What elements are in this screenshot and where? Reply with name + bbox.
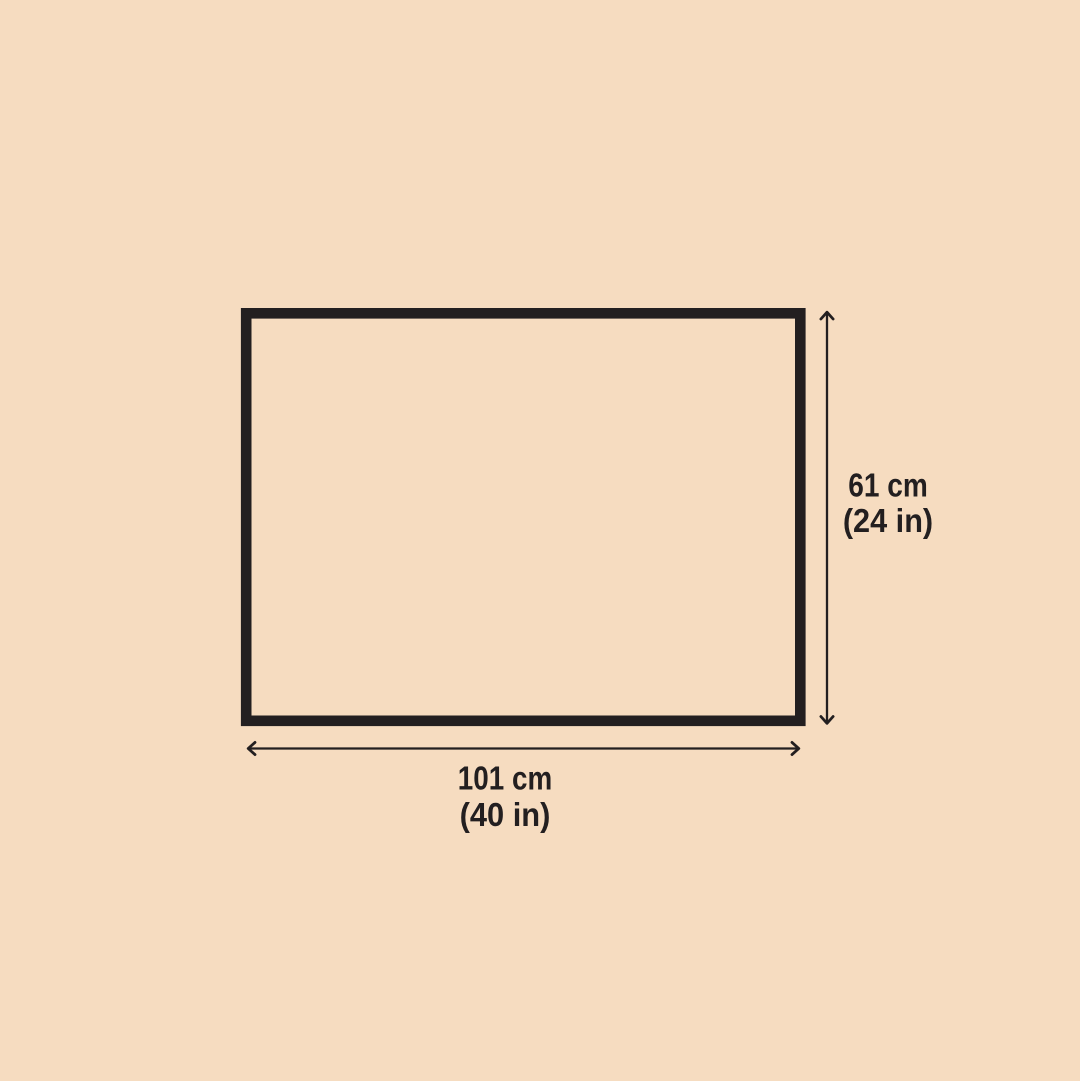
svg-text:101 cm: 101 cm [458,760,552,797]
svg-text:(40 in): (40 in) [460,797,551,834]
svg-text:61 cm: 61 cm [848,468,928,505]
svg-text:(24 in): (24 in) [843,503,933,540]
